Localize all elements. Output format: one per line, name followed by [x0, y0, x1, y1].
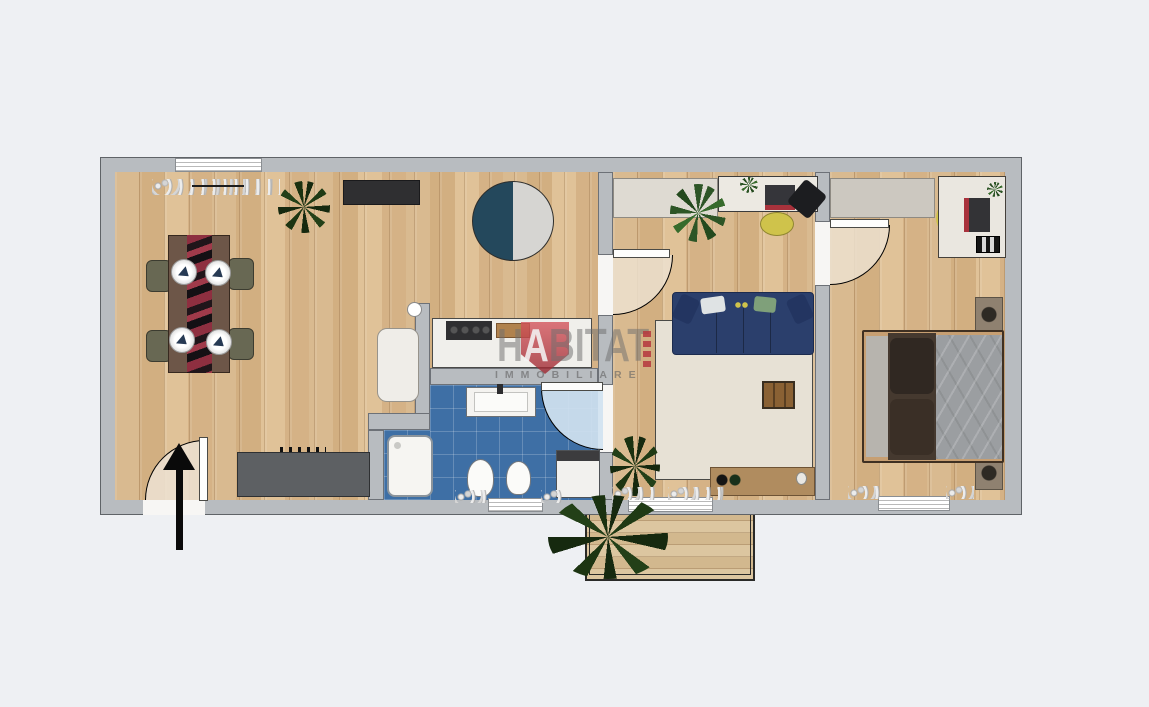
pillow: [890, 399, 934, 455]
keyboard: [976, 236, 1000, 253]
dining-chair: [228, 258, 254, 290]
ceiling-lamp-dot: [407, 302, 422, 317]
floor-plan-image: HABITAT IMMOBILIARE: [0, 0, 1149, 707]
vase: [796, 472, 807, 485]
sofa-deco-dots: [735, 300, 749, 310]
plate: [169, 327, 195, 353]
tv-panel: [343, 180, 420, 205]
entrance-door-leaf: [199, 437, 208, 501]
living-kitchen-window: [175, 158, 262, 172]
yellow-pouf: [760, 212, 794, 236]
bedroom-door-leaf: [830, 219, 889, 228]
duvet: [936, 335, 1002, 459]
living-door-opening: [598, 255, 613, 315]
living-curtain: [668, 487, 724, 500]
wall-bedroom-left-lower: [815, 285, 830, 500]
wall-living-left-upper: [598, 172, 613, 255]
watermark-red-mark: [643, 331, 651, 367]
washing-machine-panel: [557, 451, 599, 461]
desk-plant-icon: [987, 182, 1003, 197]
bedroom-curtain: [848, 486, 880, 499]
sideboard-candles: [716, 474, 742, 486]
plate: [205, 260, 231, 286]
balcony-plant-icon: [548, 495, 668, 579]
wall-shower-west: [368, 430, 384, 500]
watermark-title-a: A: [523, 319, 549, 371]
round-rug: [472, 181, 554, 261]
nightstand: [975, 297, 1003, 332]
entrance-arrow-shaft: [176, 466, 183, 550]
bidet: [506, 461, 531, 495]
watermark-title-rest: BITAT: [549, 319, 649, 371]
dining-chair: [228, 328, 254, 360]
bedroom-laptop: [964, 198, 990, 232]
sink-basin: [474, 392, 528, 412]
mattress-edge: [866, 336, 888, 457]
bedroom-window: [878, 496, 950, 511]
kitchen-counter: [237, 452, 370, 497]
bathroom-window: [488, 498, 543, 512]
coffee-table: [762, 381, 795, 409]
armchair: [377, 328, 419, 402]
pillow: [890, 338, 934, 394]
entrance-arrow-head: [163, 443, 195, 470]
wardrobe: [830, 178, 935, 218]
wall-bathroom-step: [368, 413, 430, 430]
monstera-plant-icon: [670, 184, 726, 242]
desk-plant-icon: [740, 177, 758, 193]
entrance-opening: [143, 500, 205, 515]
bedroom-curtain: [946, 486, 974, 499]
curtain-rod: [192, 185, 244, 187]
potted-plant-icon: [278, 181, 330, 233]
green-pillow: [753, 296, 776, 313]
living-window-curtains: [152, 179, 280, 195]
shower-drain: [394, 442, 401, 449]
bathroom-curtain: [455, 490, 489, 503]
watermark-title-h: H: [497, 319, 523, 371]
watermark: HABITAT IMMOBILIARE: [450, 316, 680, 390]
bathroom-curtain: [541, 490, 563, 503]
living-door-leaf: [613, 249, 670, 258]
plate: [206, 329, 232, 355]
watermark-subtitle: IMMOBILIARE: [495, 369, 643, 381]
watermark-title: HABITAT: [497, 318, 649, 372]
bedroom-door-opening: [815, 222, 830, 285]
sofa-cushion-seams: [690, 308, 796, 353]
table-runner: [187, 235, 212, 373]
plate: [171, 259, 197, 285]
white-pillow: [700, 295, 726, 314]
